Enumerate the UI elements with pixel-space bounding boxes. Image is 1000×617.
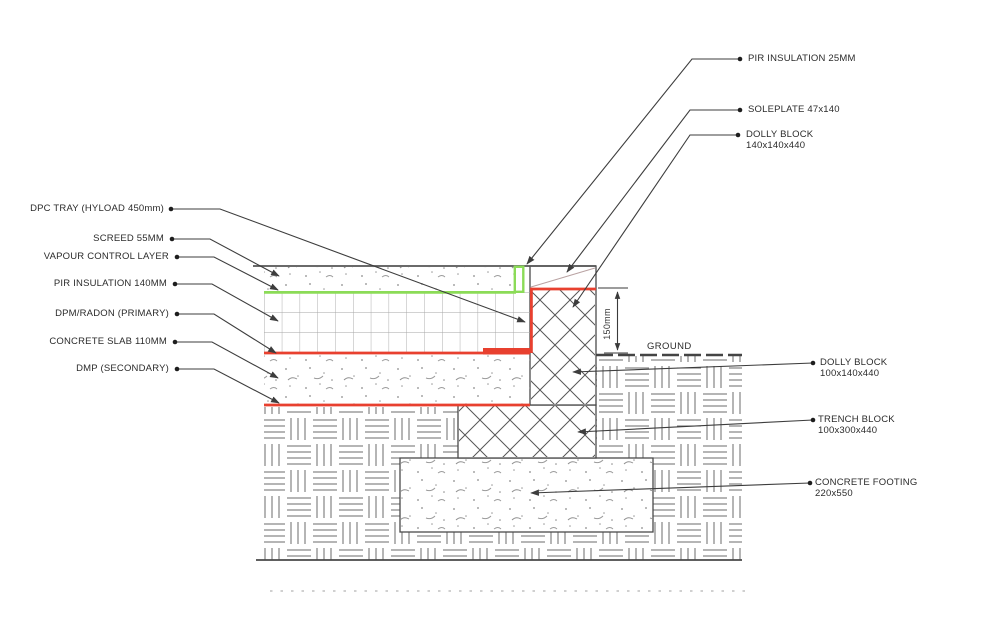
label-concrete-footing: CONCRETE FOOTING 220x550 bbox=[815, 477, 917, 499]
label-screed: SCREED 55MM bbox=[93, 233, 164, 244]
dimension-150mm-text: 150mm bbox=[602, 301, 612, 347]
label-dpm-radon-primary: DPM/RADON (PRIMARY) bbox=[55, 308, 169, 319]
pir-insulation-layer bbox=[264, 292, 530, 353]
concrete-footing bbox=[400, 458, 653, 532]
trench-block bbox=[458, 405, 596, 458]
label-dolly-block-100: DOLLY BLOCK 100x140x440 bbox=[820, 357, 887, 379]
label-ground: GROUND bbox=[647, 341, 692, 352]
label-concrete-slab: CONCRETE SLAB 110MM bbox=[49, 336, 167, 347]
label-vapour-control-layer: VAPOUR CONTROL LAYER bbox=[44, 251, 169, 262]
label-dolly-block-140: DOLLY BLOCK 140x140x440 bbox=[746, 129, 813, 151]
technical-drawing-page: DPC TRAY (HYLOAD 450mm) SCREED 55MM VAPO… bbox=[0, 0, 1000, 617]
concrete-slab-layer bbox=[264, 354, 530, 404]
label-pir-insulation-140: PIR INSULATION 140MM bbox=[54, 278, 167, 289]
screed-layer bbox=[264, 267, 515, 292]
label-dpc-tray: DPC TRAY (HYLOAD 450mm) bbox=[30, 203, 164, 214]
label-dmp-secondary: DMP (SECONDARY) bbox=[76, 363, 169, 374]
label-pir-insulation-25: PIR INSULATION 25MM bbox=[748, 53, 856, 64]
label-trench-block: TRENCH BLOCK 100x300x440 bbox=[818, 414, 895, 436]
label-soleplate: SOLEPLATE 47x140 bbox=[748, 104, 840, 115]
